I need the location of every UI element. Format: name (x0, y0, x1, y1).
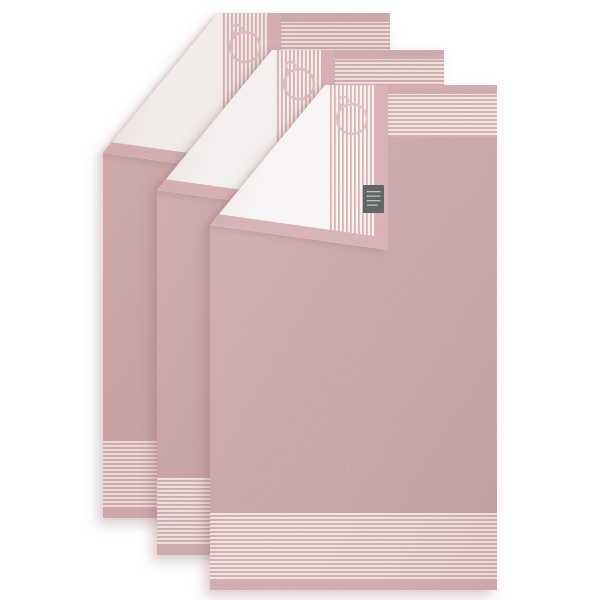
product-image (0, 0, 600, 600)
towel-set-image (0, 0, 600, 600)
